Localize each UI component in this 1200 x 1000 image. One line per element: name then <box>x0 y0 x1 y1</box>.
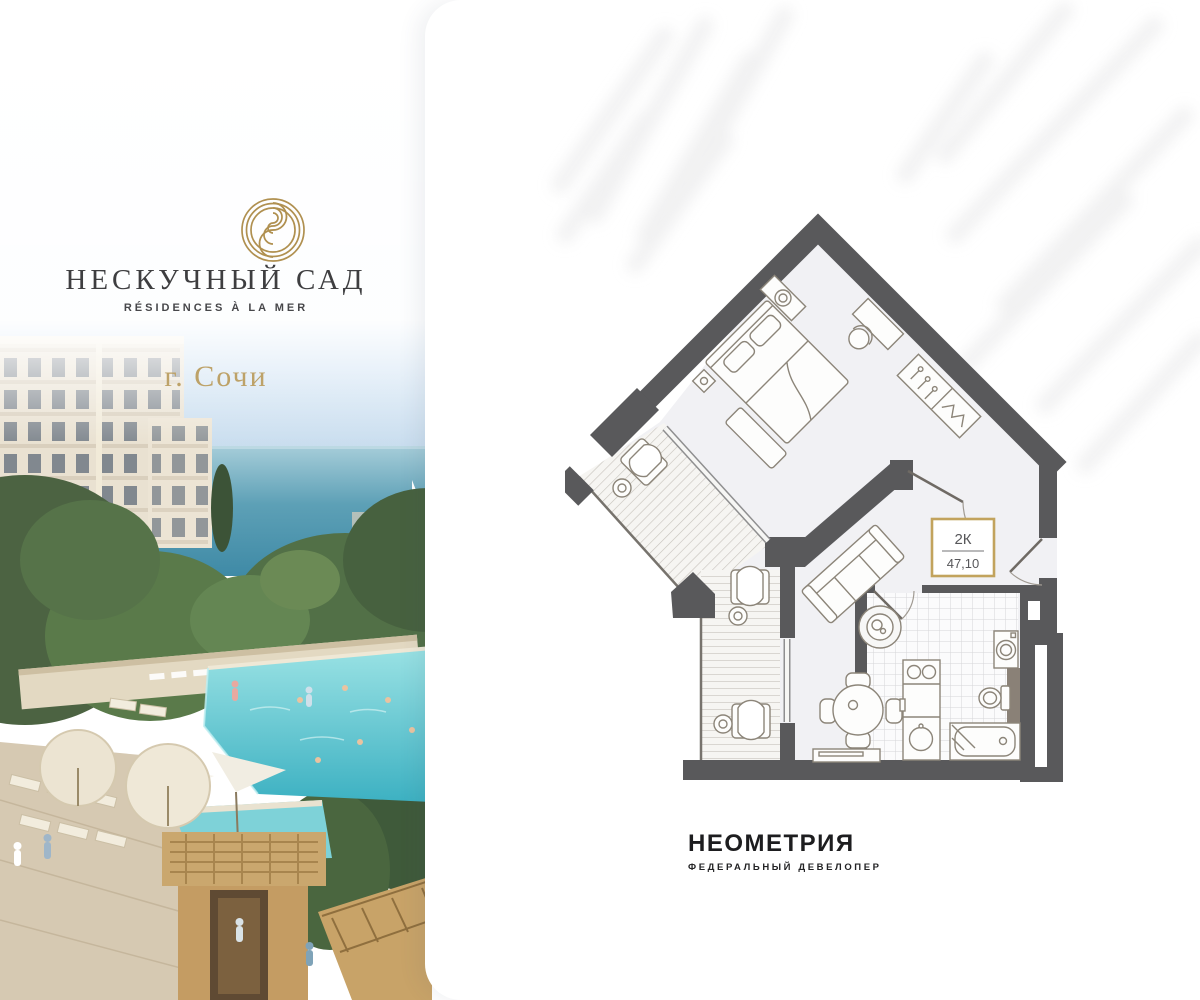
kitchen-counter <box>900 660 940 760</box>
balcony-armchair <box>731 566 769 605</box>
project-tagline: RÉSIDENCES À LA MER <box>0 302 432 314</box>
washing-machine <box>994 631 1018 668</box>
rug-floor-lamp <box>859 606 901 648</box>
spiral-rings-icon <box>237 194 309 266</box>
project-city: г. Сочи <box>0 360 432 394</box>
toilet <box>979 686 1010 710</box>
floor-plan: 2К 47,10 <box>565 212 1085 792</box>
developer-subtitle: ФЕДЕРАЛЬНЫЙ ДЕВЕЛОПЕР <box>688 862 988 873</box>
resort-photo <box>0 0 432 1000</box>
badge-room-type: 2К <box>954 531 971 548</box>
stove-burner <box>923 666 936 679</box>
duct-shaft <box>1035 645 1047 767</box>
area-badge: 2К 47,10 <box>932 519 994 576</box>
developer-logo: НЕОМЕТРИЯ ФЕДЕРАЛЬНЫЙ ДЕВЕЛОПЕР <box>688 830 988 873</box>
wall-niche <box>1028 601 1040 620</box>
balcony-armchair <box>732 700 770 739</box>
bathtub <box>950 723 1020 760</box>
tv-stand <box>813 749 880 762</box>
resort-photo-panel: НЕСКУЧНЫЙ САД RÉSIDENCES À LA MER г. Соч… <box>0 0 432 1000</box>
developer-name: НЕОМЕТРИЯ <box>688 830 988 858</box>
stove-burner <box>908 666 921 679</box>
kitchen-sink <box>910 728 933 751</box>
pool-pavilion <box>162 832 326 1000</box>
badge-area-value: 47,10 <box>947 556 980 571</box>
project-name: НЕСКУЧНЫЙ САД <box>0 264 432 297</box>
